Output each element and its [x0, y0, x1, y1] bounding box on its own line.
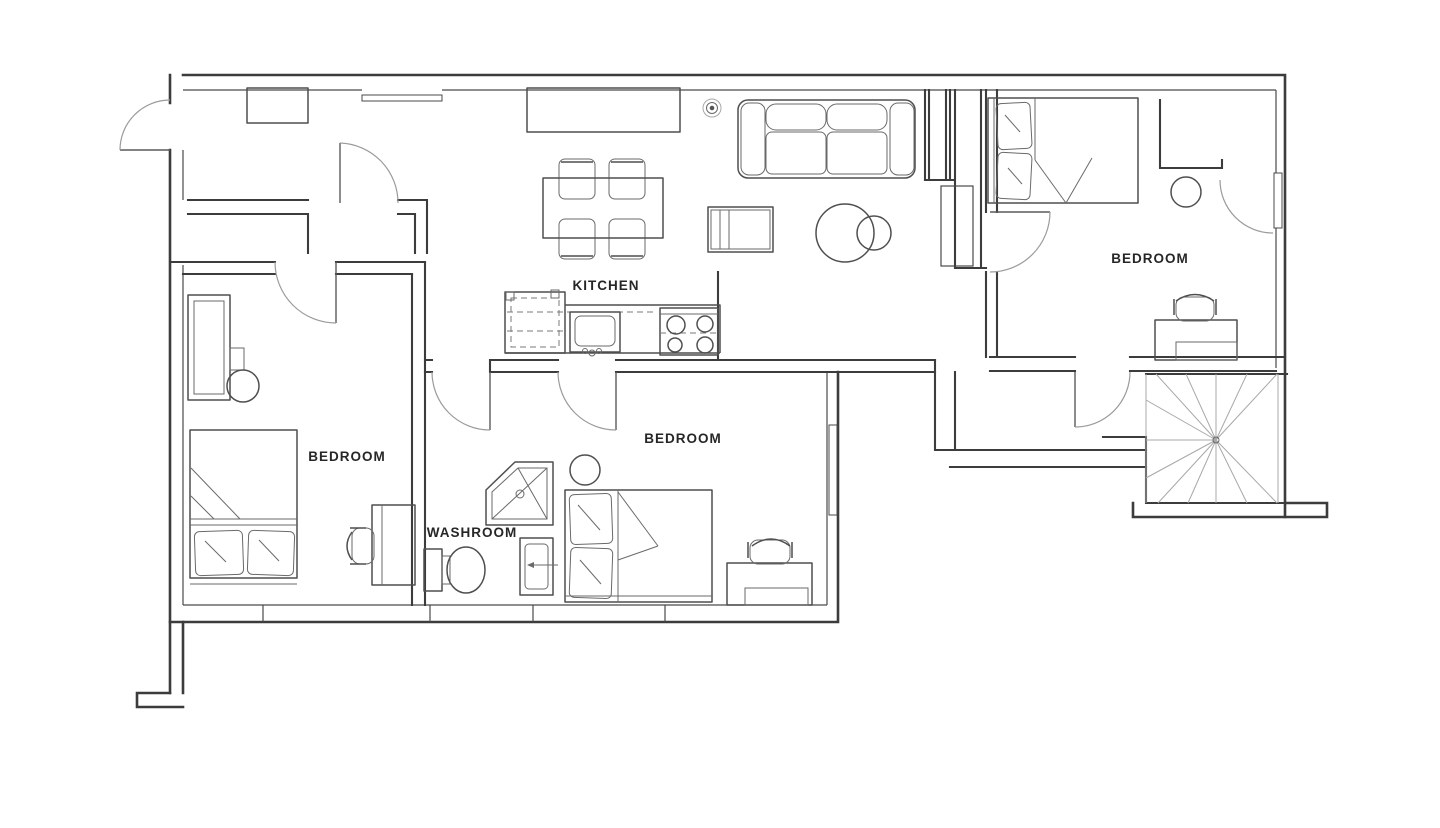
exterior-walls	[137, 75, 1327, 707]
stove	[660, 308, 718, 355]
sideboard	[527, 88, 680, 132]
dining-set	[543, 159, 663, 259]
dining-chair	[559, 159, 645, 259]
sofa	[738, 100, 915, 178]
bedroom-middle-door	[558, 372, 616, 430]
room-label-washroom: WASHROOM	[427, 525, 518, 540]
desk-bottom-left	[372, 505, 415, 585]
washroom-door	[432, 372, 490, 430]
pillow	[996, 102, 1032, 150]
washroom-sink	[520, 538, 558, 595]
pillow	[996, 152, 1032, 200]
wardrobe-bottom-left	[188, 295, 244, 400]
windows	[362, 95, 1282, 515]
pillow	[194, 530, 244, 576]
desk-chair-middle	[748, 539, 792, 564]
refrigerator	[505, 290, 565, 353]
shower-drain	[516, 490, 524, 498]
bed-top-right	[988, 98, 1138, 203]
desk-top-right	[1155, 320, 1237, 360]
doors	[120, 100, 1273, 430]
round-table-and-stool	[816, 204, 891, 262]
shower	[486, 462, 553, 525]
room-label-bedroom-bottom-left: BEDROOM	[308, 449, 386, 464]
bedroom-top-right-door	[990, 212, 1050, 272]
utility-closet-door	[941, 186, 973, 266]
window-middle-bedroom	[829, 425, 837, 515]
window-top	[362, 95, 442, 101]
wall-cabinet	[247, 88, 308, 123]
hall-door	[340, 143, 398, 203]
floor-plan-canvas: KITCHEN WASHROOM BEDROOM BEDROOM BEDROOM	[0, 0, 1440, 828]
kitchen-sink	[570, 312, 620, 356]
interior-walls	[170, 90, 1287, 605]
entry-door	[120, 100, 170, 150]
desk-chair-bottom-left	[347, 528, 374, 564]
pillow	[569, 493, 613, 544]
tv-stand	[708, 207, 773, 252]
ceiling-light	[703, 99, 721, 117]
room-label-kitchen: KITCHEN	[573, 278, 640, 293]
winder-staircase	[1146, 374, 1278, 503]
desk-chair-top-right	[1174, 295, 1216, 322]
bedroom-bottom-left-door	[275, 262, 336, 323]
toilet	[424, 547, 485, 593]
room-labels: KITCHEN WASHROOM BEDROOM BEDROOM BEDROOM	[308, 251, 1189, 540]
round-table	[816, 204, 874, 262]
side-table-middle	[570, 455, 600, 485]
stair-hall-door	[1075, 372, 1130, 427]
bed-middle	[565, 490, 712, 602]
room-label-bedroom-top-right: BEDROOM	[1111, 251, 1189, 266]
side-table-top-right	[1171, 177, 1201, 207]
room-label-bedroom-middle: BEDROOM	[644, 431, 722, 446]
side-table-bottom-left	[227, 370, 259, 402]
closet-door-arc	[1220, 180, 1273, 233]
desk-middle	[727, 563, 812, 605]
window-right	[1274, 173, 1282, 228]
bed-bottom-left	[190, 430, 297, 584]
floor-plan-drawing: KITCHEN WASHROOM BEDROOM BEDROOM BEDROOM	[0, 0, 1440, 828]
